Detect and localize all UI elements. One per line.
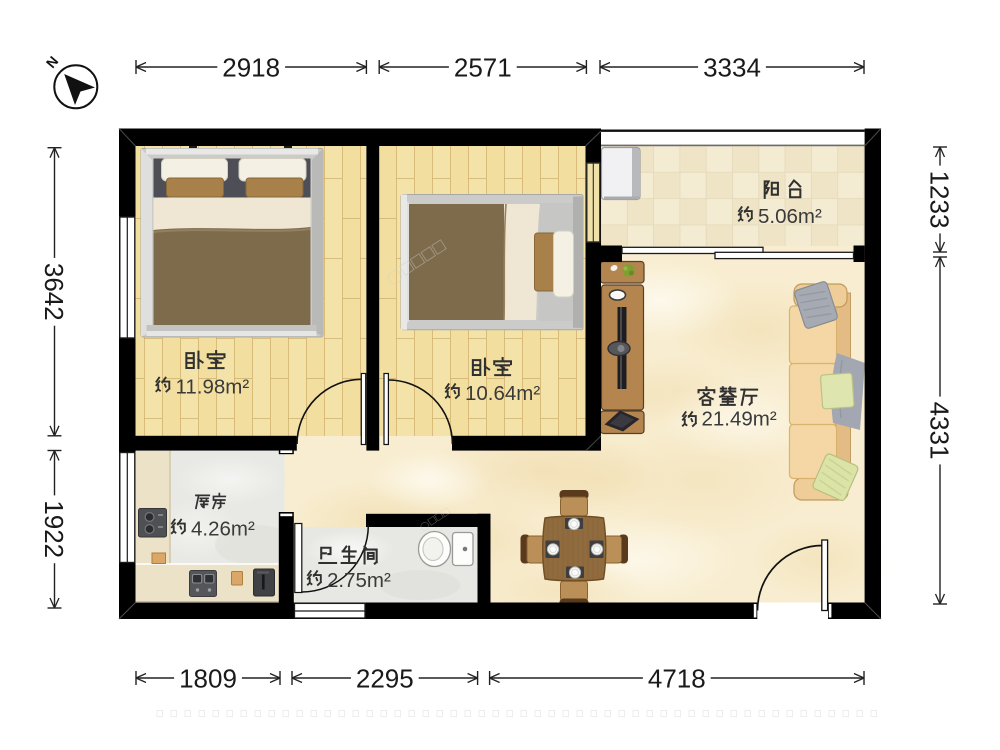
- svg-text:4718: 4718: [648, 663, 706, 693]
- svg-text:2918: 2918: [222, 52, 280, 82]
- svg-text:2571: 2571: [454, 52, 512, 82]
- svg-text:1809: 1809: [179, 663, 237, 693]
- svg-text:3334: 3334: [703, 52, 761, 82]
- svg-text:1233: 1233: [925, 171, 955, 229]
- svg-text:3642: 3642: [39, 263, 69, 321]
- svg-text:21.49m²: 21.49m²: [702, 408, 777, 431]
- svg-text:N: N: [43, 53, 62, 71]
- svg-text:10.64m²: 10.64m²: [465, 382, 540, 405]
- svg-text:2.75m²: 2.75m²: [327, 569, 391, 592]
- svg-text:4331: 4331: [925, 402, 955, 460]
- svg-text:4.26m²: 4.26m²: [191, 518, 255, 541]
- svg-text:5.06m²: 5.06m²: [758, 205, 822, 228]
- svg-text:1922: 1922: [39, 500, 69, 558]
- svg-text:2295: 2295: [356, 663, 414, 693]
- svg-text:11.98m²: 11.98m²: [176, 376, 250, 399]
